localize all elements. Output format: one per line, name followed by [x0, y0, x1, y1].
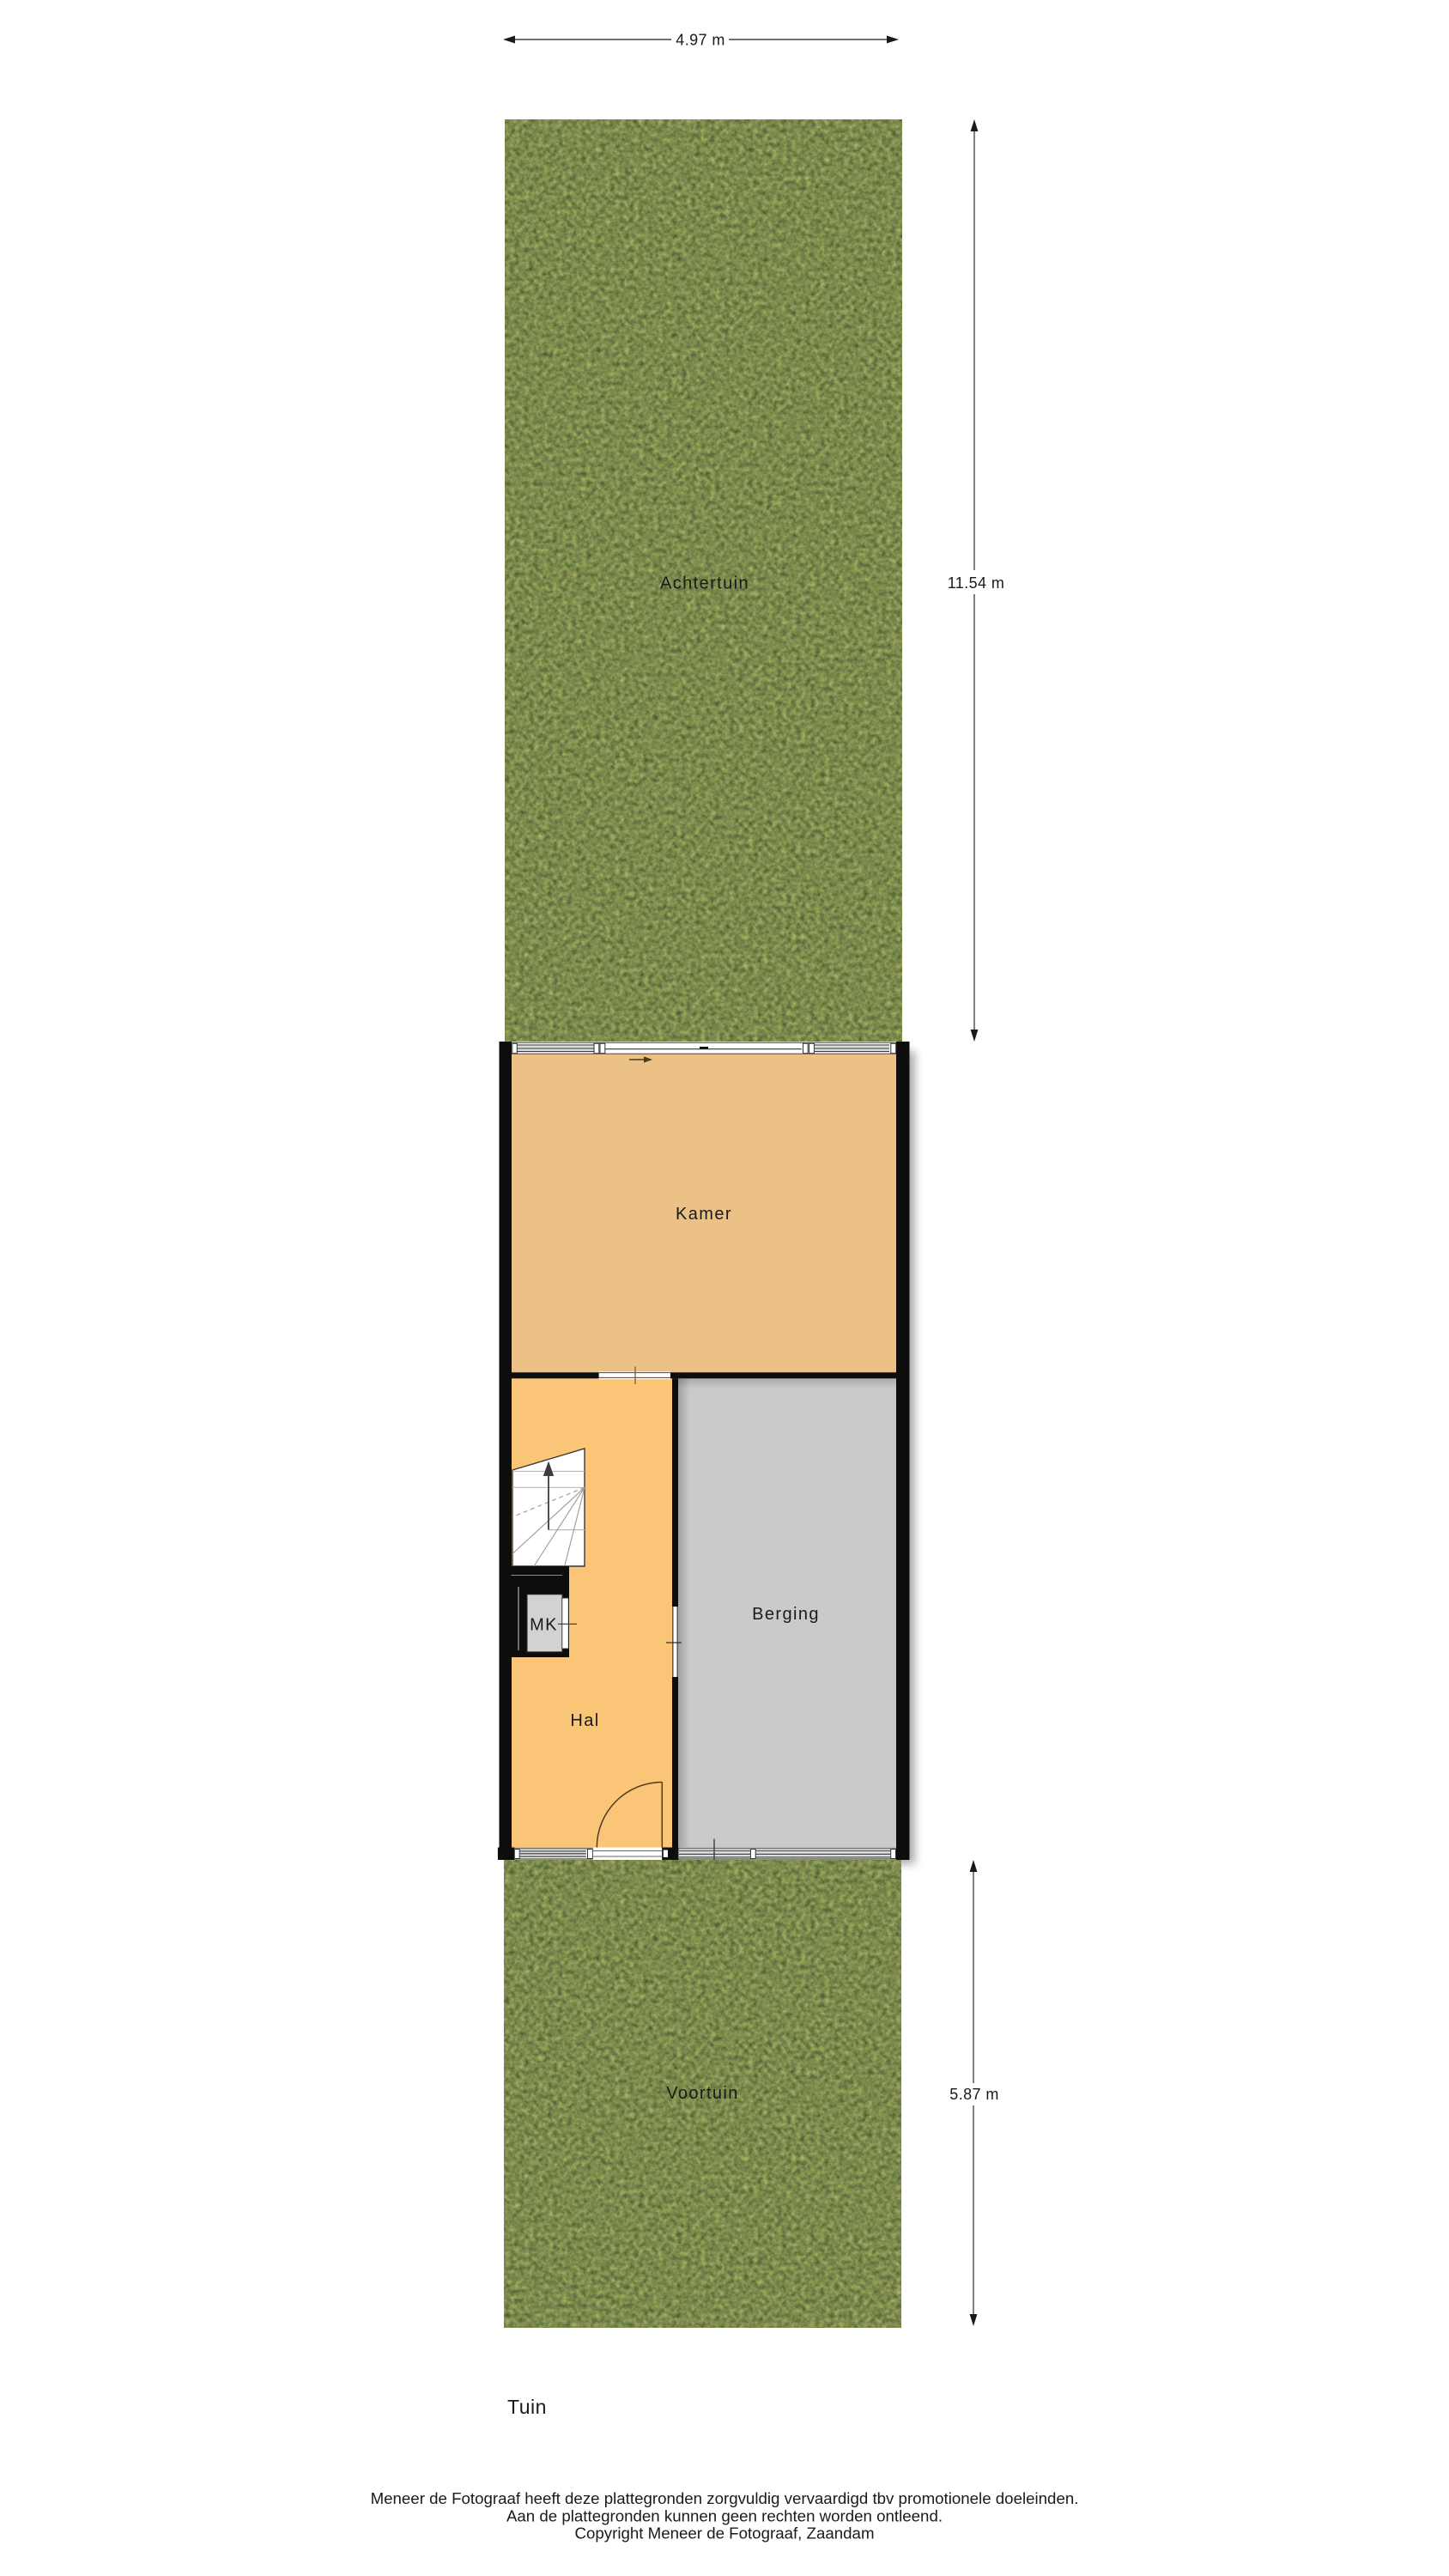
svg-text:Achtertuin: Achtertuin — [660, 574, 749, 593]
svg-text:Tuin: Tuin — [507, 2396, 547, 2418]
svg-text:Meneer de Fotograaf heeft deze: Meneer de Fotograaf heeft deze plattegro… — [371, 2489, 1079, 2507]
svg-text:Voortuin: Voortuin — [666, 2084, 739, 2103]
svg-text:Aan de plattegronden kunnen ge: Aan de plattegronden kunnen geen rechten… — [506, 2506, 943, 2524]
svg-text:4.97 m: 4.97 m — [676, 32, 724, 49]
svg-text:5.87 m: 5.87 m — [949, 2086, 998, 2103]
svg-text:Hal: Hal — [570, 1711, 599, 1730]
svg-text:MK: MK — [530, 1616, 558, 1635]
svg-text:11.54 m: 11.54 m — [948, 574, 1005, 592]
svg-text:Copyright Meneer de Fotograaf,: Copyright Meneer de Fotograaf, Zaandam — [574, 2524, 874, 2543]
svg-text:Kamer: Kamer — [676, 1205, 732, 1224]
svg-text:Berging: Berging — [752, 1605, 820, 1624]
